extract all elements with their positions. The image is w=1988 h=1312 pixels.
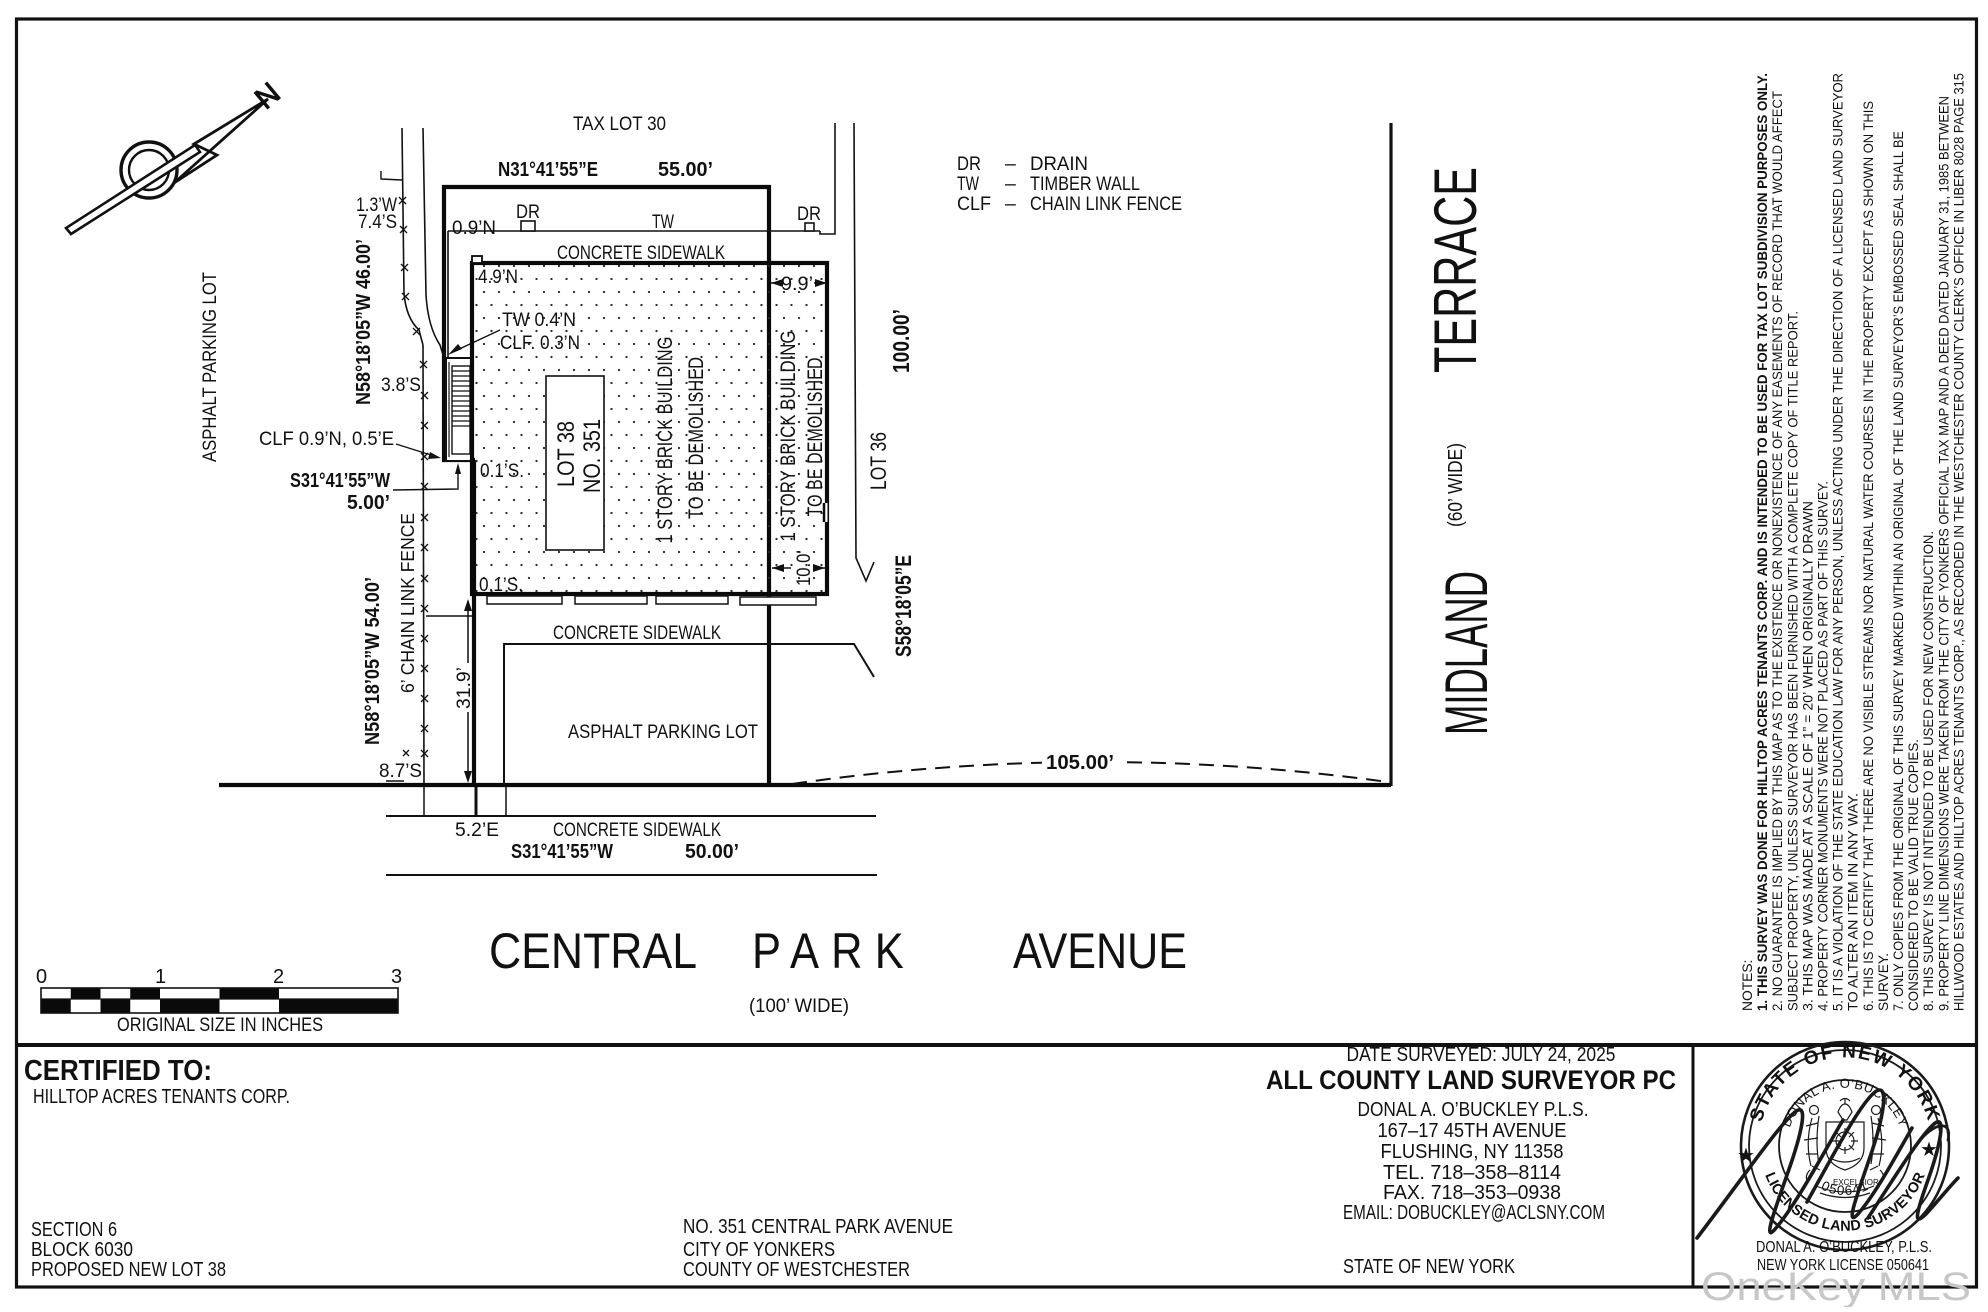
svg-text:7.4’S: 7.4’S — [358, 212, 397, 233]
svg-text:(100’ WIDE): (100’ WIDE) — [749, 995, 849, 1017]
svg-text:CLF: CLF — [957, 193, 991, 215]
svg-text:2: 2 — [273, 966, 284, 988]
svg-text:1. THIS SURVEY WAS DONE FOR HI: 1. THIS SURVEY WAS DONE FOR HILLTOP ACRE… — [1755, 73, 1770, 1011]
svg-text:DRAIN: DRAIN — [1030, 153, 1088, 175]
svg-text:4.9’N: 4.9’N — [478, 266, 518, 288]
svg-text:CLF 0.9’N, 0.5’E: CLF 0.9’N, 0.5’E — [259, 428, 394, 450]
svg-text:8.7’S: 8.7’S — [379, 760, 422, 782]
svg-text:DR: DR — [516, 201, 540, 223]
svg-text:S31°41’55”W: S31°41’55”W — [511, 841, 613, 863]
svg-text:–: – — [1005, 153, 1016, 175]
svg-text:8. THIS SURVEY IS NOT INTENDED: 8. THIS SURVEY IS NOT INTENDED TO BE USE… — [1921, 531, 1936, 1011]
svg-text:COUNTY OF WESTCHESTER: COUNTY OF WESTCHESTER — [683, 1259, 910, 1281]
svg-text:CONCRETE SIDEWALK: CONCRETE SIDEWALK — [553, 819, 721, 841]
svg-text:(60’ WIDE): (60’ WIDE) — [1445, 443, 1467, 527]
svg-text:0.9’N: 0.9’N — [452, 217, 496, 239]
svg-text:DONAL A. O’BUCKLEY, P.L.S.: DONAL A. O’BUCKLEY, P.L.S. — [1756, 1239, 1932, 1256]
svg-text:FAX. 718–353–0938: FAX. 718–353–0938 — [1383, 1182, 1561, 1204]
svg-text:TO ALTER AN ITEM IN ANY WAY.: TO ALTER AN ITEM IN ANY WAY. — [1846, 793, 1861, 1011]
svg-text:6’ CHAIN LINK FENCE: 6’ CHAIN LINK FENCE — [398, 513, 418, 693]
svg-text:105.00’: 105.00’ — [1046, 752, 1114, 774]
svg-text:TO BE DEMOLISHED: TO BE DEMOLISHED — [684, 357, 708, 519]
svg-text:5.00’: 5.00’ — [347, 492, 390, 514]
svg-text:PROPOSED NEW LOT 38: PROPOSED NEW LOT 38 — [31, 1259, 226, 1281]
svg-text:HILLTOP ACRES TENANTS CORP.: HILLTOP ACRES TENANTS CORP. — [33, 1086, 290, 1108]
svg-text:TW: TW — [957, 173, 979, 195]
svg-text:6. THIS IS TO CERTIFY THAT THE: 6. THIS IS TO CERTIFY THAT THERE ARE NO … — [1861, 101, 1876, 1011]
svg-text:MIDLAND: MIDLAND — [1433, 571, 1500, 735]
svg-text:–: – — [1005, 173, 1016, 195]
svg-text:N31°41’55”E: N31°41’55”E — [498, 159, 598, 181]
svg-text:DR: DR — [797, 203, 821, 225]
svg-text:167–17 45TH AVENUE: 167–17 45TH AVENUE — [1378, 1120, 1567, 1142]
svg-text:HILLWOOD ESTATES AND HILLTOP A: HILLWOOD ESTATES AND HILLTOP ACRES TENAN… — [1951, 73, 1966, 1011]
svg-text:100.00’: 100.00’ — [888, 309, 914, 373]
svg-text:CITY OF YONKERS: CITY OF YONKERS — [683, 1239, 835, 1261]
svg-text:S58°18’05”E: S58°18’05”E — [891, 555, 916, 657]
svg-text:5. IT IS A VIOLATION OF THE ST: 5. IT IS A VIOLATION OF THE STATE EDUCAT… — [1831, 73, 1846, 1011]
svg-text:SUBJECT PROPERTY, UNLESS SURVE: SUBJECT PROPERTY, UNLESS SURVEYOR HAS BE… — [1785, 311, 1800, 1011]
svg-text:EXCELSIOR: EXCELSIOR — [1833, 1178, 1879, 1187]
svg-text:CONCRETE SIDEWALK: CONCRETE SIDEWALK — [553, 622, 721, 644]
svg-text:TEL. 718–358–8114: TEL. 718–358–8114 — [1383, 1162, 1561, 1184]
svg-text:N58°18’05”W 54.00’: N58°18’05”W 54.00’ — [362, 577, 384, 745]
svg-text:0: 0 — [36, 966, 47, 988]
svg-text:STATE OF NEW YORK: STATE OF NEW YORK — [1343, 1256, 1516, 1278]
svg-text:1 STORY BRICK BUILDING: 1 STORY BRICK BUILDING — [653, 337, 677, 544]
svg-text:FLUSHING, NY 11358: FLUSHING, NY 11358 — [1381, 1141, 1564, 1163]
svg-text:N58°18’05”W 46.00’: N58°18’05”W 46.00’ — [353, 239, 375, 405]
svg-text:3.8’S: 3.8’S — [381, 375, 421, 396]
svg-text:SURVEY.: SURVEY. — [1876, 953, 1891, 1011]
svg-text:DATE SURVEYED: JULY 24, 20: DATE SURVEYED: JULY 24, 2025 — [1347, 1044, 1616, 1066]
svg-text:50.00’: 50.00’ — [685, 841, 739, 863]
svg-text:7. ONLY COPIES FROM THE ORIGIN: 7. ONLY COPIES FROM THE ORIGINAL OF THIS… — [1891, 131, 1906, 1011]
svg-text:ASPHALT PARKING LOT: ASPHALT PARKING LOT — [199, 272, 221, 462]
svg-text:NOTES:: NOTES: — [1740, 960, 1755, 1011]
svg-text:3. THIS MAP WAS MADE AT A SCAL: 3. THIS MAP WAS MADE AT A SCALE OF 1” = … — [1800, 501, 1815, 1011]
svg-text:EMAIL: DOBUCKLEY@ACLSNY.COM: EMAIL: DOBUCKLEY@ACLSNY.COM — [1343, 1202, 1605, 1224]
svg-text:ORIGINAL SIZE IN INCHES: ORIGINAL SIZE IN INCHES — [117, 1014, 323, 1036]
svg-text:PARK: PARK — [752, 923, 916, 979]
svg-text:ALL COUNTY LAND SURVEYOR P: ALL COUNTY LAND SURVEYOR PC — [1266, 1065, 1676, 1095]
svg-text:AVENUE: AVENUE — [1013, 923, 1187, 979]
svg-text:CENTRAL: CENTRAL — [489, 923, 697, 979]
svg-text:CONSIDERED TO BE VALID TRUE CO: CONSIDERED TO BE VALID TRUE COPIES. — [1906, 739, 1921, 1011]
svg-text:CONCRETE SIDEWALK: CONCRETE SIDEWALK — [557, 242, 725, 264]
svg-text:9.9’: 9.9’ — [781, 273, 813, 295]
svg-text:10.0’: 10.0’ — [793, 550, 815, 586]
svg-text:DR: DR — [957, 153, 981, 175]
svg-text:0.1’S.: 0.1’S. — [480, 460, 524, 482]
svg-text:NO. 351 CENTRAL PARK AVENU: NO. 351 CENTRAL PARK AVENUE — [683, 1216, 953, 1238]
svg-text:2. NO GUARANTEE IS IMPLIED BY: 2. NO GUARANTEE IS IMPLIED BY THIS MAP A… — [1770, 90, 1785, 1011]
svg-text:S31°41’55”W: S31°41’55”W — [290, 470, 390, 492]
svg-text:1: 1 — [155, 966, 166, 988]
svg-text:ASPHALT PARKING LOT: ASPHALT PARKING LOT — [568, 721, 758, 743]
svg-text:SECTION 6: SECTION 6 — [31, 1219, 117, 1241]
svg-text:–: – — [1005, 193, 1016, 215]
svg-text:31.9’: 31.9’ — [453, 667, 475, 709]
svg-text:TO BE DEMOLISHED: TO BE DEMOLISHED — [803, 358, 827, 517]
svg-text:TERRACE: TERRACE — [1422, 167, 1489, 373]
svg-text:CERTIFIED TO:: CERTIFIED TO: — [24, 1055, 212, 1087]
svg-text:OneKey MLS: OneKey MLS — [1701, 1265, 1971, 1307]
svg-text:0.1’S.: 0.1’S. — [479, 574, 523, 596]
svg-text:TAX LOT 30: TAX LOT 30 — [573, 113, 666, 135]
svg-text:BLOCK 6030: BLOCK 6030 — [31, 1239, 133, 1261]
svg-text:TIMBER WALL: TIMBER WALL — [1030, 173, 1140, 195]
svg-text:9. PROPERTY LINE DIMENSIONS WE: 9. PROPERTY LINE DIMENSIONS WERE TAKEN F… — [1936, 96, 1951, 1011]
svg-text:1 STORY BRICK BUILDING: 1 STORY BRICK BUILDING — [776, 331, 800, 542]
svg-text:4. PROPERTY CORNER MONUMENTS W: 4. PROPERTY CORNER MONUMENTS WERE NOT PL… — [1816, 481, 1831, 1011]
svg-text:LOT 38: LOT 38 — [553, 421, 580, 487]
svg-text:NO. 351: NO. 351 — [579, 419, 606, 493]
svg-text:CHAIN LINK FENCE: CHAIN LINK FENCE — [1030, 193, 1182, 215]
svg-text:DONAL A. O’BUCKLEY P.L.S.: DONAL A. O’BUCKLEY P.L.S. — [1358, 1099, 1589, 1121]
svg-text:3: 3 — [391, 966, 402, 988]
svg-text:TW: TW — [652, 211, 674, 233]
svg-text:LOT 36: LOT 36 — [866, 432, 891, 490]
svg-text:5.2’E: 5.2’E — [455, 819, 499, 841]
svg-text:55.00’: 55.00’ — [658, 159, 713, 181]
